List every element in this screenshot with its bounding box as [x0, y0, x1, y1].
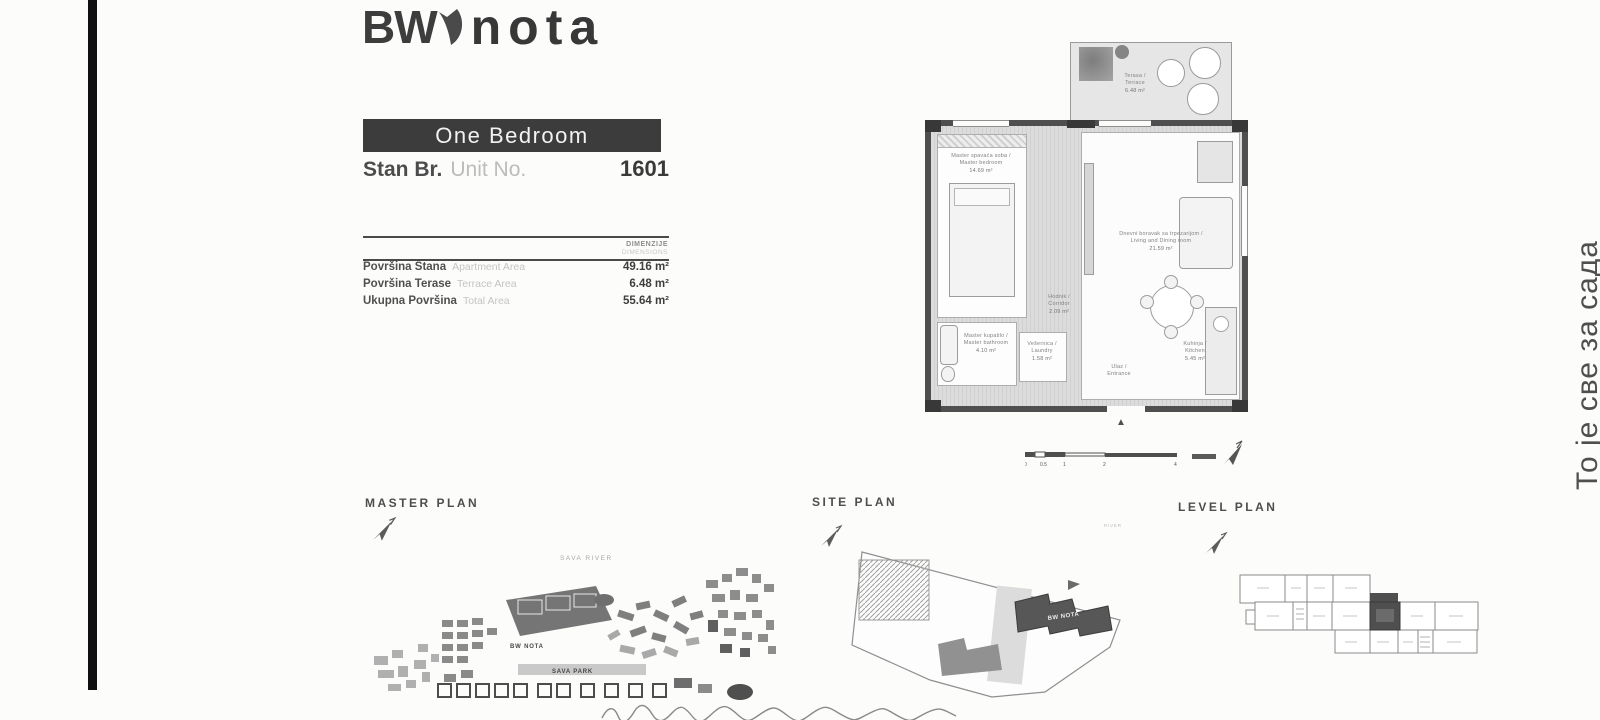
- chair: [1190, 295, 1204, 309]
- city-blocks: [617, 595, 704, 642]
- room-label-corridor: Hodnik Corridor 2.09 m²: [1035, 294, 1083, 316]
- dimensions-header: DIMENZIJE DIMENSIONS: [363, 236, 669, 261]
- cropped-handwriting: [598, 704, 962, 720]
- site-plan-title: SITE PLAN: [812, 495, 897, 509]
- row-value: 49.16 m²: [623, 261, 669, 273]
- pillows: [954, 188, 1010, 206]
- master-plan-title: MASTER PLAN: [365, 496, 479, 510]
- unit-type-banner: One Bedroom: [363, 119, 661, 152]
- tv-console: [1084, 163, 1094, 275]
- chair: [1140, 295, 1154, 309]
- scanned-floorplan-page: То је све за сада BW nota One Bedroom St…: [0, 0, 1600, 720]
- unit-label-sr: Stan Br.: [363, 158, 442, 182]
- svg-text:SAVA RIVER: SAVA RIVER: [560, 555, 613, 562]
- north-arrow-icon: [1206, 533, 1226, 554]
- row-label-sr: Površina Terase: [363, 278, 451, 290]
- svg-text:BW NOTA: BW NOTA: [510, 644, 544, 650]
- svg-text:RIVER: RIVER: [1104, 523, 1122, 528]
- unit-number: 1601: [620, 156, 669, 182]
- logo-nota-text: nota: [471, 0, 605, 56]
- svg-text:0: 0: [1025, 462, 1027, 468]
- unit-type-label: One Bedroom: [435, 123, 588, 149]
- room-living-dining: Dnevni boravak sa trpezarijom Living and…: [1081, 132, 1240, 400]
- terrace-plant: [1115, 45, 1129, 59]
- terrace-table: [1189, 47, 1221, 79]
- terrace-plant: [1079, 47, 1113, 81]
- park-pavilions: [438, 684, 666, 697]
- table-row: Površina Stana Apartment Area 49.16 m²: [363, 261, 669, 278]
- chair: [1164, 275, 1178, 289]
- row-value: 6.48 m²: [629, 278, 669, 290]
- level-plan-title: LEVEL PLAN: [1178, 500, 1277, 514]
- wall-pier: [1067, 120, 1095, 128]
- wall-pier: [925, 120, 941, 132]
- bw-nota-logo: BW nota: [362, 0, 604, 54]
- room-label-entrance: Ulaz Entrance: [1089, 364, 1149, 378]
- level-plan-map: [1175, 525, 1505, 683]
- dimensions-header-sr: DIMENZIJE: [363, 241, 668, 248]
- terrace-table: [1187, 83, 1219, 115]
- drop-logo-icon: [439, 9, 465, 52]
- row-label-en: Terrace Area: [457, 278, 517, 290]
- room-label-bathroom: Master kupatilo Master bathroom 4.10 m²: [960, 333, 1012, 355]
- scan-edge-bar: [88, 0, 97, 690]
- room-label-terrace: Terasa Terrace 6.48 m²: [1111, 73, 1159, 95]
- terrace-door: [1099, 120, 1151, 127]
- site-plan-map: RIVER BW NOTA: [810, 518, 1142, 708]
- scale-bar: 0 0.5 1 2 4: [1025, 448, 1190, 470]
- row-label-sr: Ukupna Površina: [363, 295, 457, 307]
- room-laundry: Vešernica Laundry 1.58 m²: [1019, 332, 1067, 382]
- svg-text:SAVA PARK: SAVA PARK: [552, 669, 593, 675]
- window: [953, 120, 1009, 127]
- terrace-area: Terasa Terrace 6.48 m²: [1070, 42, 1232, 124]
- north-arrow-icon: [821, 526, 841, 547]
- city-blocks: [374, 644, 439, 691]
- unit-floor-plan: Terasa Terrace 6.48 m² Master spavaća so…: [920, 40, 1265, 485]
- tower-footprint: [727, 684, 753, 700]
- room-label-bedroom: Master spavaća soba Master bedroom 14.69…: [940, 153, 1022, 175]
- wardrobe: [938, 135, 1026, 148]
- room-master-bathroom: Master kupatilo Master bathroom 4.10 m²: [937, 322, 1017, 386]
- room-label-kitchen: Kuhinja Kitchen 5.45 m²: [1170, 341, 1220, 363]
- sink: [1213, 316, 1229, 332]
- unit-number-line: Stan Br. Unit No. 1601: [363, 156, 669, 182]
- highlighted-unit-extension: [1370, 593, 1398, 602]
- entrance-opening: [1107, 406, 1145, 412]
- neighbor-block: [859, 560, 929, 620]
- entrance-arrow-icon: ▲: [1116, 417, 1126, 428]
- row-label-en: Total Area: [463, 295, 510, 307]
- row-label-sr: Površina Stana: [363, 261, 446, 273]
- table-row: Površina Terase Terrace Area 6.48 m²: [363, 278, 669, 295]
- bathtub: [940, 325, 958, 365]
- terrace-table: [1157, 59, 1185, 87]
- dimensions-table: DIMENZIJE DIMENSIONS Površina Stana Apar…: [363, 236, 669, 312]
- row-label-en: Apartment Area: [452, 261, 525, 273]
- bed: [949, 183, 1015, 297]
- dining-table: [1150, 285, 1194, 329]
- room-master-bedroom: Master spavaća soba Master bedroom 14.69…: [937, 134, 1027, 318]
- row-value: 55.64 m²: [623, 295, 669, 307]
- unit-label-en: Unit No.: [450, 158, 526, 182]
- wall-pier: [1232, 400, 1248, 412]
- city-blocks: [442, 618, 497, 682]
- wall-pier: [925, 400, 941, 412]
- apartment-outline: Master spavaća soba Master bedroom 14.69…: [925, 120, 1248, 412]
- location-flag-icon: [1068, 580, 1080, 590]
- room-label-laundry: Vešernica Laundry 1.58 m²: [1021, 341, 1063, 363]
- room-label-living: Dnevni boravak sa trpezarijom Living and…: [1108, 231, 1214, 253]
- logo-bw-text: BW: [362, 0, 437, 54]
- svg-text:0.5: 0.5: [1040, 462, 1047, 468]
- north-arrow-icon: [1192, 438, 1244, 470]
- city-blocks: [706, 568, 776, 654]
- wall-pier: [1232, 120, 1248, 132]
- svg-text:2: 2: [1103, 462, 1106, 468]
- chair: [1164, 325, 1178, 339]
- side-note-vertical-text: То је све за сада: [1571, 240, 1600, 490]
- window: [1241, 186, 1248, 256]
- svg-text:1: 1: [1063, 462, 1066, 468]
- toilet: [941, 366, 955, 382]
- svg-text:4: 4: [1174, 462, 1177, 468]
- master-plan-map: SAVA RIVER BW NOTA: [368, 528, 784, 714]
- dimensions-header-en: DIMENSIONS: [363, 249, 668, 256]
- cabinet: [1197, 141, 1233, 183]
- level-units: [1240, 575, 1478, 653]
- table-row: Ukupna Površina Total Area 55.64 m²: [363, 295, 669, 312]
